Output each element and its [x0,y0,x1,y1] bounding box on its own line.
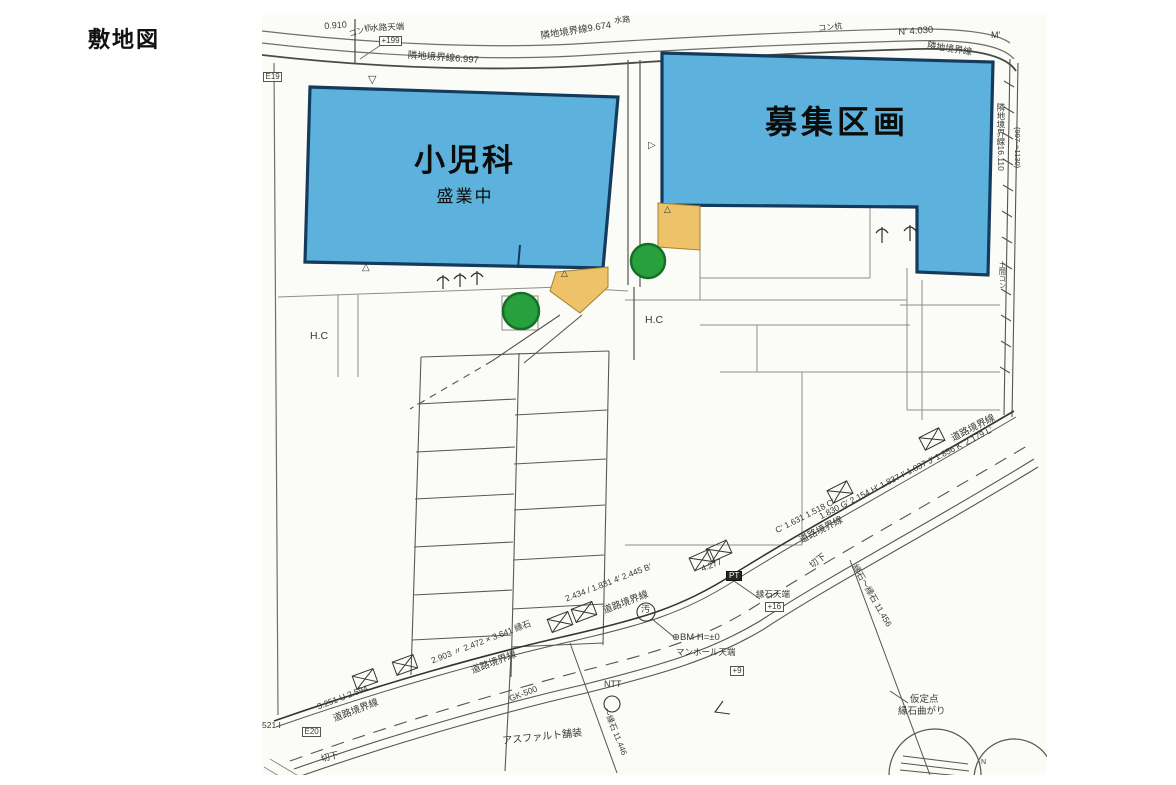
label-enseki-value: +16 [765,602,784,612]
label-hc-left: H.C [310,331,328,342]
label-e20: E20 [302,727,321,737]
label-521: 521 I [262,721,281,730]
dim-0910: 0.910 [324,20,347,31]
pediatrics-name: 小児科 [390,135,540,180]
site-plan-drawing: 小児科 盛業中 募集区画 0.910コン杭水路天端+199隣地境界線6.997隣… [262,15,1047,775]
label-pt: PT [726,571,742,581]
building-label-vacant: 募集区画 [732,97,942,143]
marker-nabla-top: ▽ [368,75,376,87]
label-ntt: NTT [604,680,622,689]
marker-triangle-orange-mid: △ [664,205,671,214]
vacant-name: 募集区画 [732,97,942,143]
building-vacant-shape [662,53,993,275]
label-e19: E19 [263,72,282,82]
label-manhole-tenba: マンホール天端 [676,648,736,657]
arrow-symbol [715,701,730,714]
site-plan-page: { "site_title": "敷地図", "buildings": { "p… [0,0,1176,785]
label-osui: 汚 [641,605,650,614]
label-997-1130: (997〜1130) [1013,127,1021,168]
label-plus9: +9 [730,666,744,676]
label-suiro-tenba-value: +199 [379,36,402,46]
label-rinchi-16110: 隣地境界線16.110 [996,103,1005,171]
marker-triangle-side: ▷ [648,141,656,152]
label-bm: ⊕BM H=±0 [672,633,720,643]
label-hc-right: H.C [645,315,663,326]
tree-right [631,244,665,278]
label-n-small: N [981,759,986,766]
label-suiro-tenba: 水路天端 [370,22,404,33]
marker-triangle-left: △ [362,263,370,274]
label-enseki-tenba: 縁石天端 [756,590,790,599]
label-doma-kon: 土間コン [998,261,1005,289]
tree-left [503,293,539,329]
label-enseki-magari: 縁石曲がり [898,707,946,717]
orange-area-left [550,267,608,313]
label-suiro: 水路 [614,16,631,25]
building-label-pediatrics: 小児科 盛業中 [390,135,540,207]
label-m-prime: M′ [991,31,1000,40]
survey-boxes [352,428,945,690]
pediatrics-status: 盛業中 [390,182,540,207]
marker-triangle-orange-left: △ [561,269,568,278]
label-katei-ten: 仮定点 [910,695,939,705]
driveway-arcs [889,729,1047,775]
page-title: 敷地図 [88,22,160,54]
